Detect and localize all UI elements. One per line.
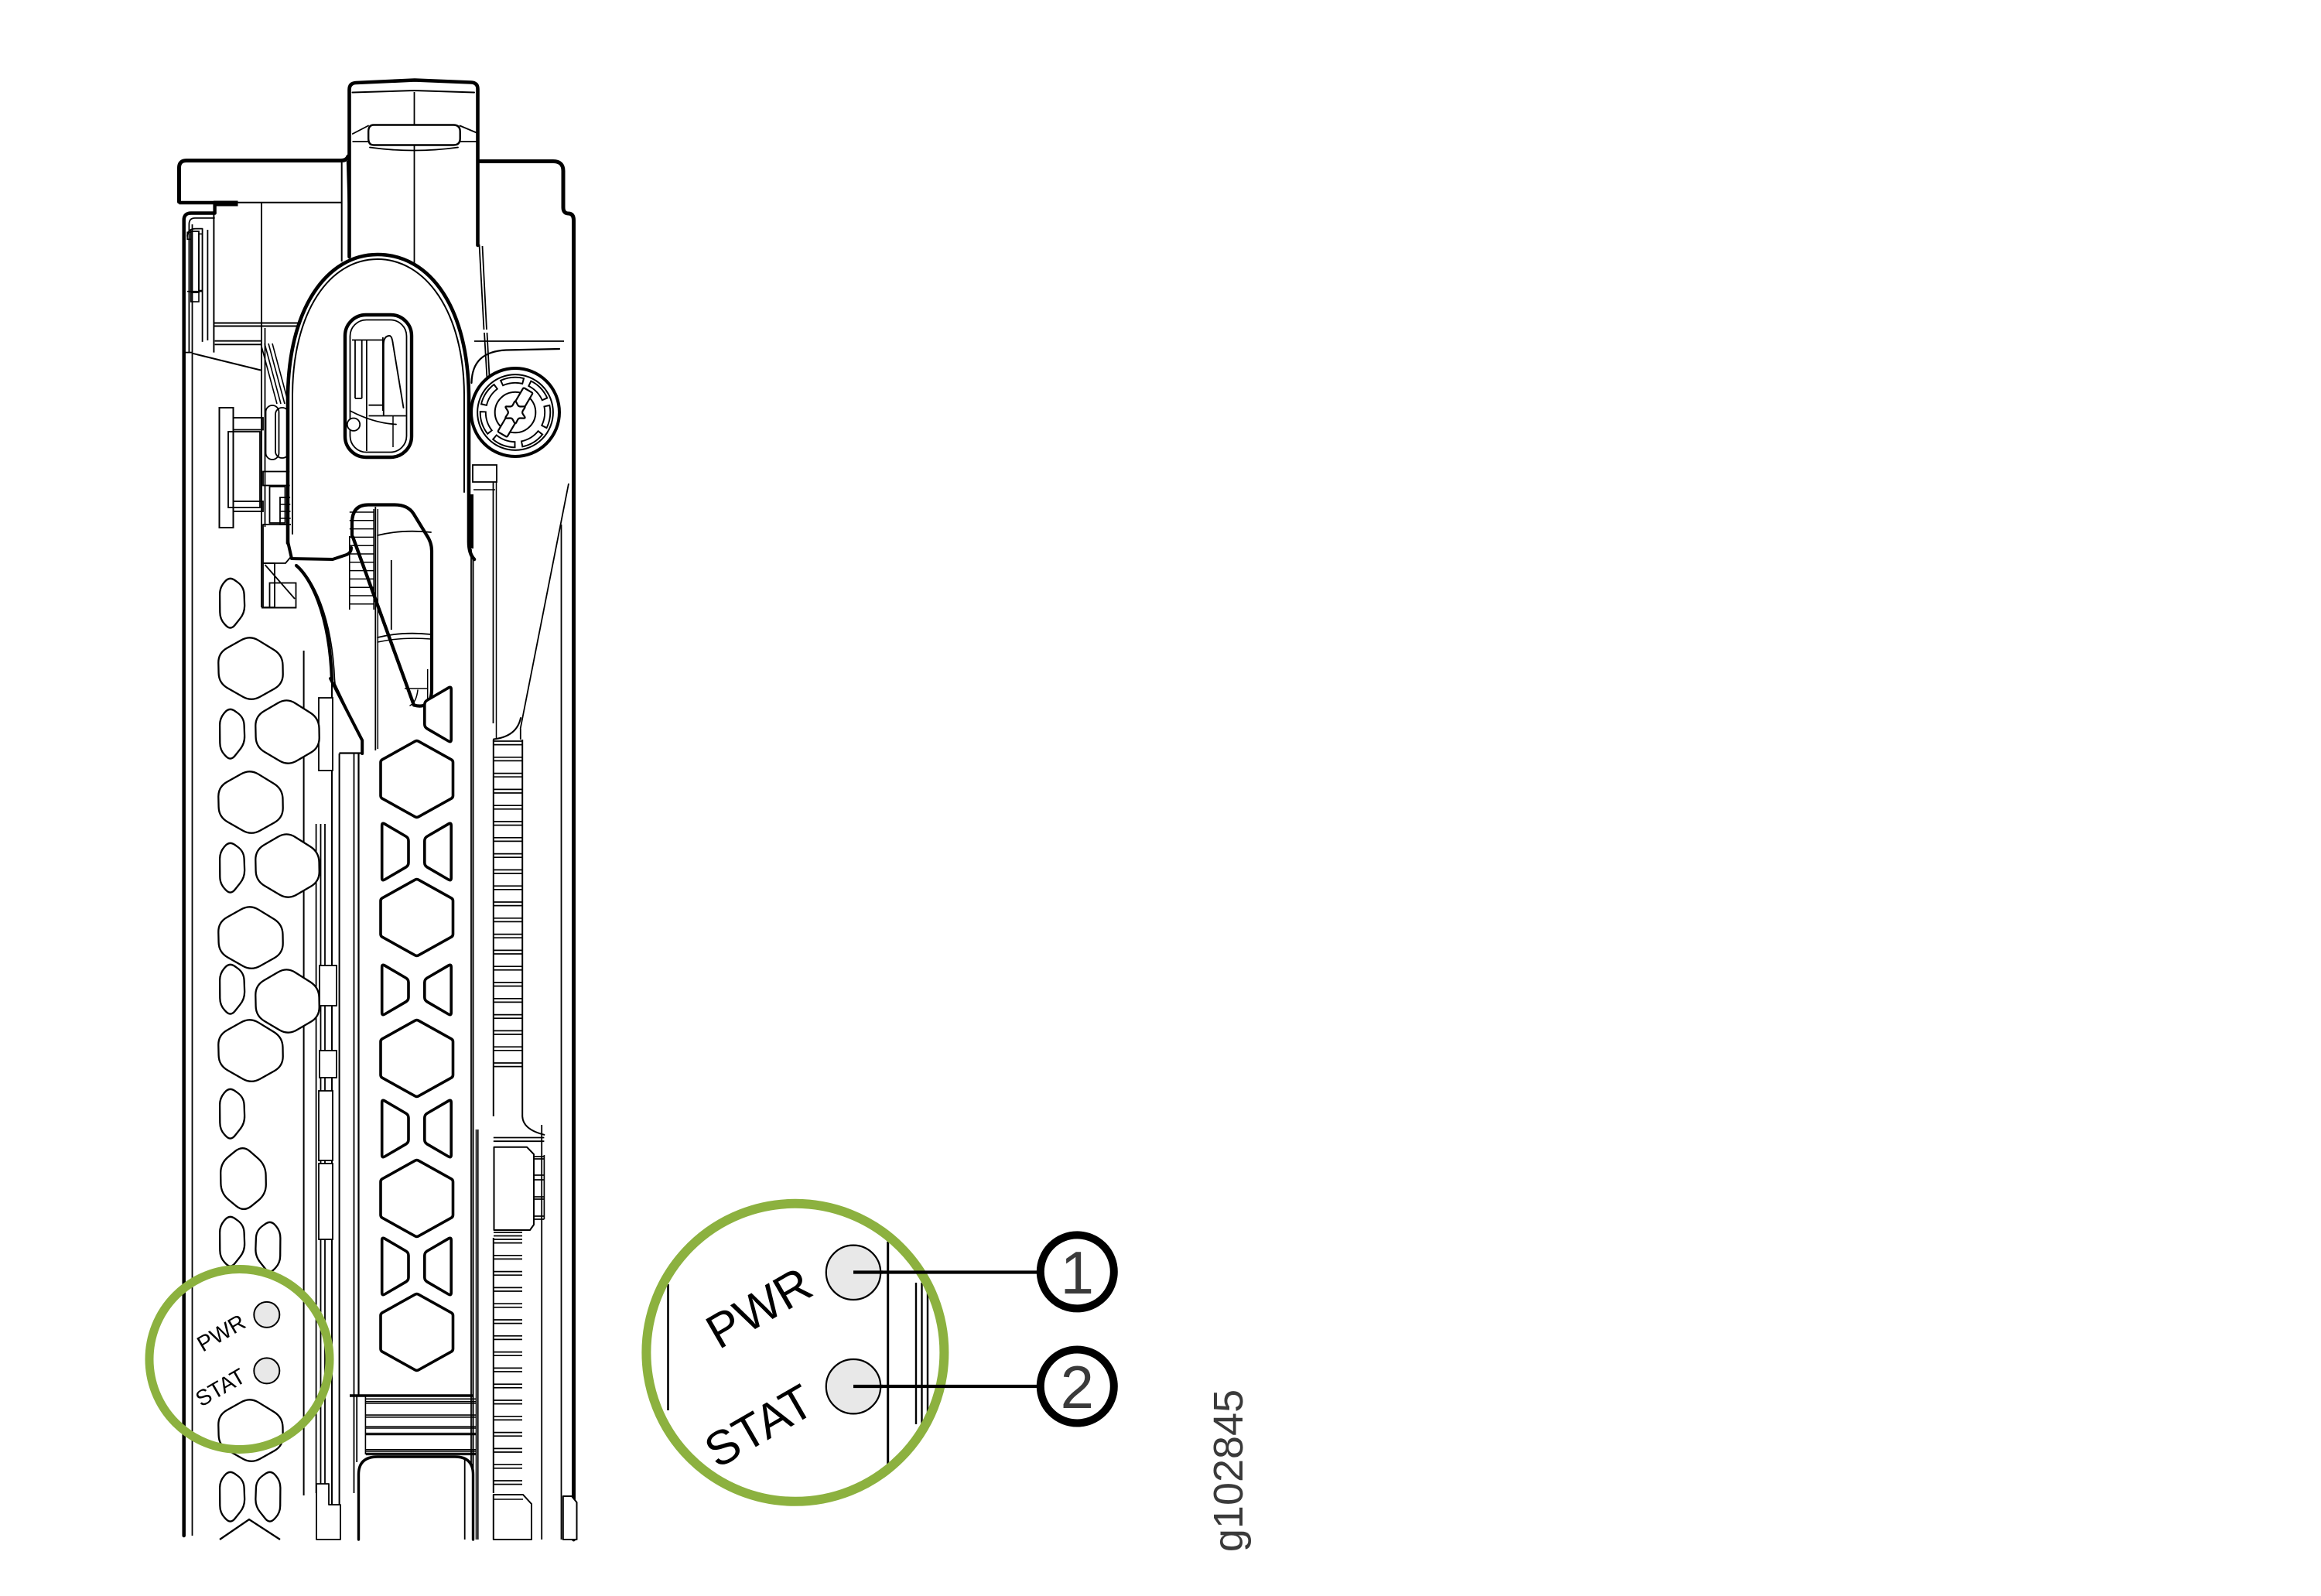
svg-text:2: 2	[1061, 1353, 1094, 1421]
svg-text:1: 1	[1061, 1239, 1094, 1307]
svg-text:g102845: g102845	[1205, 1389, 1252, 1552]
